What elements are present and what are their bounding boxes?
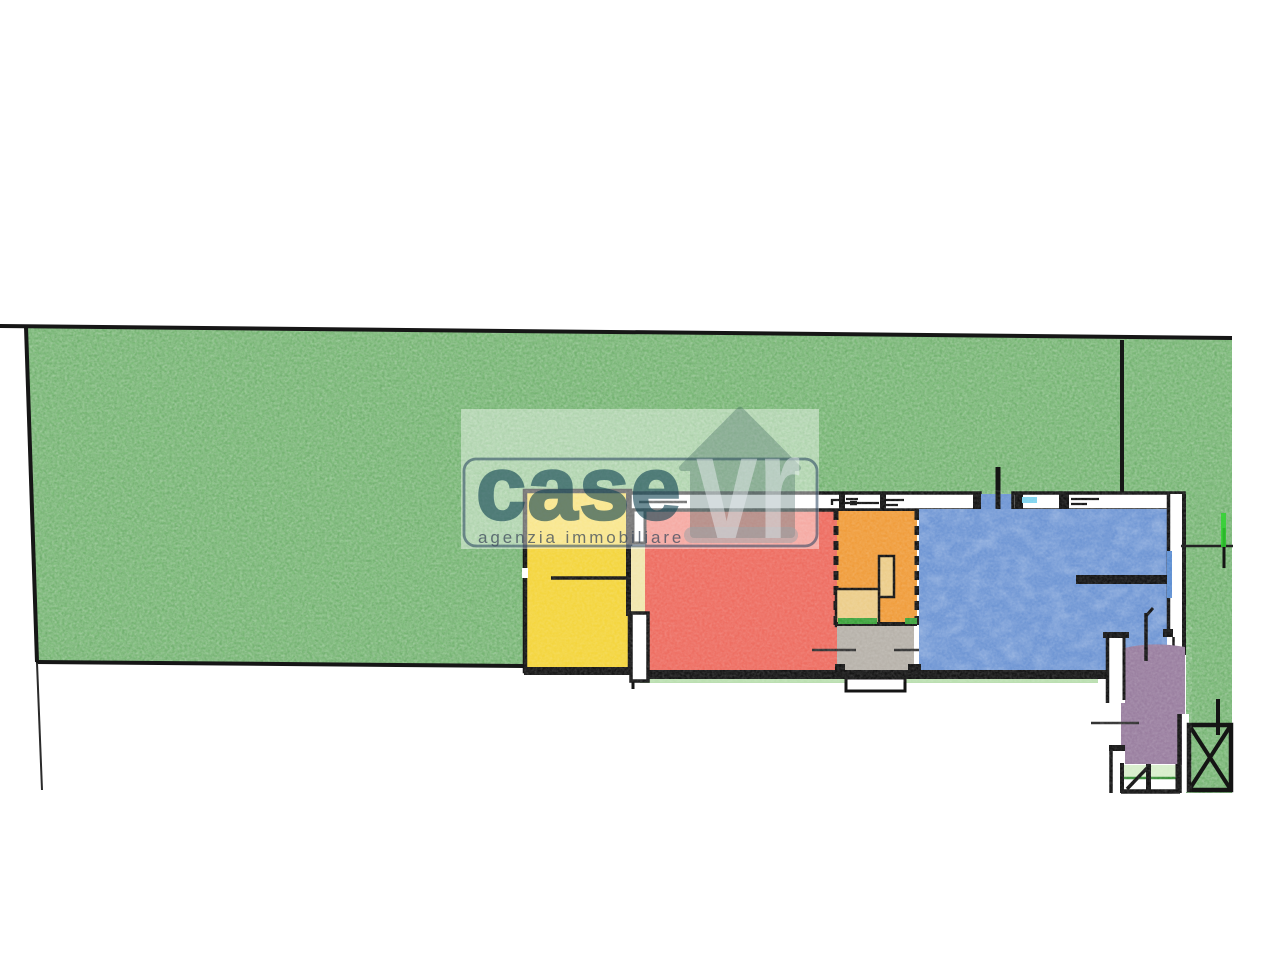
svg-text:vr: vr: [696, 403, 801, 570]
svg-text:agenzia immobiliare: agenzia immobiliare: [478, 528, 684, 547]
svg-text:case: case: [476, 439, 682, 539]
